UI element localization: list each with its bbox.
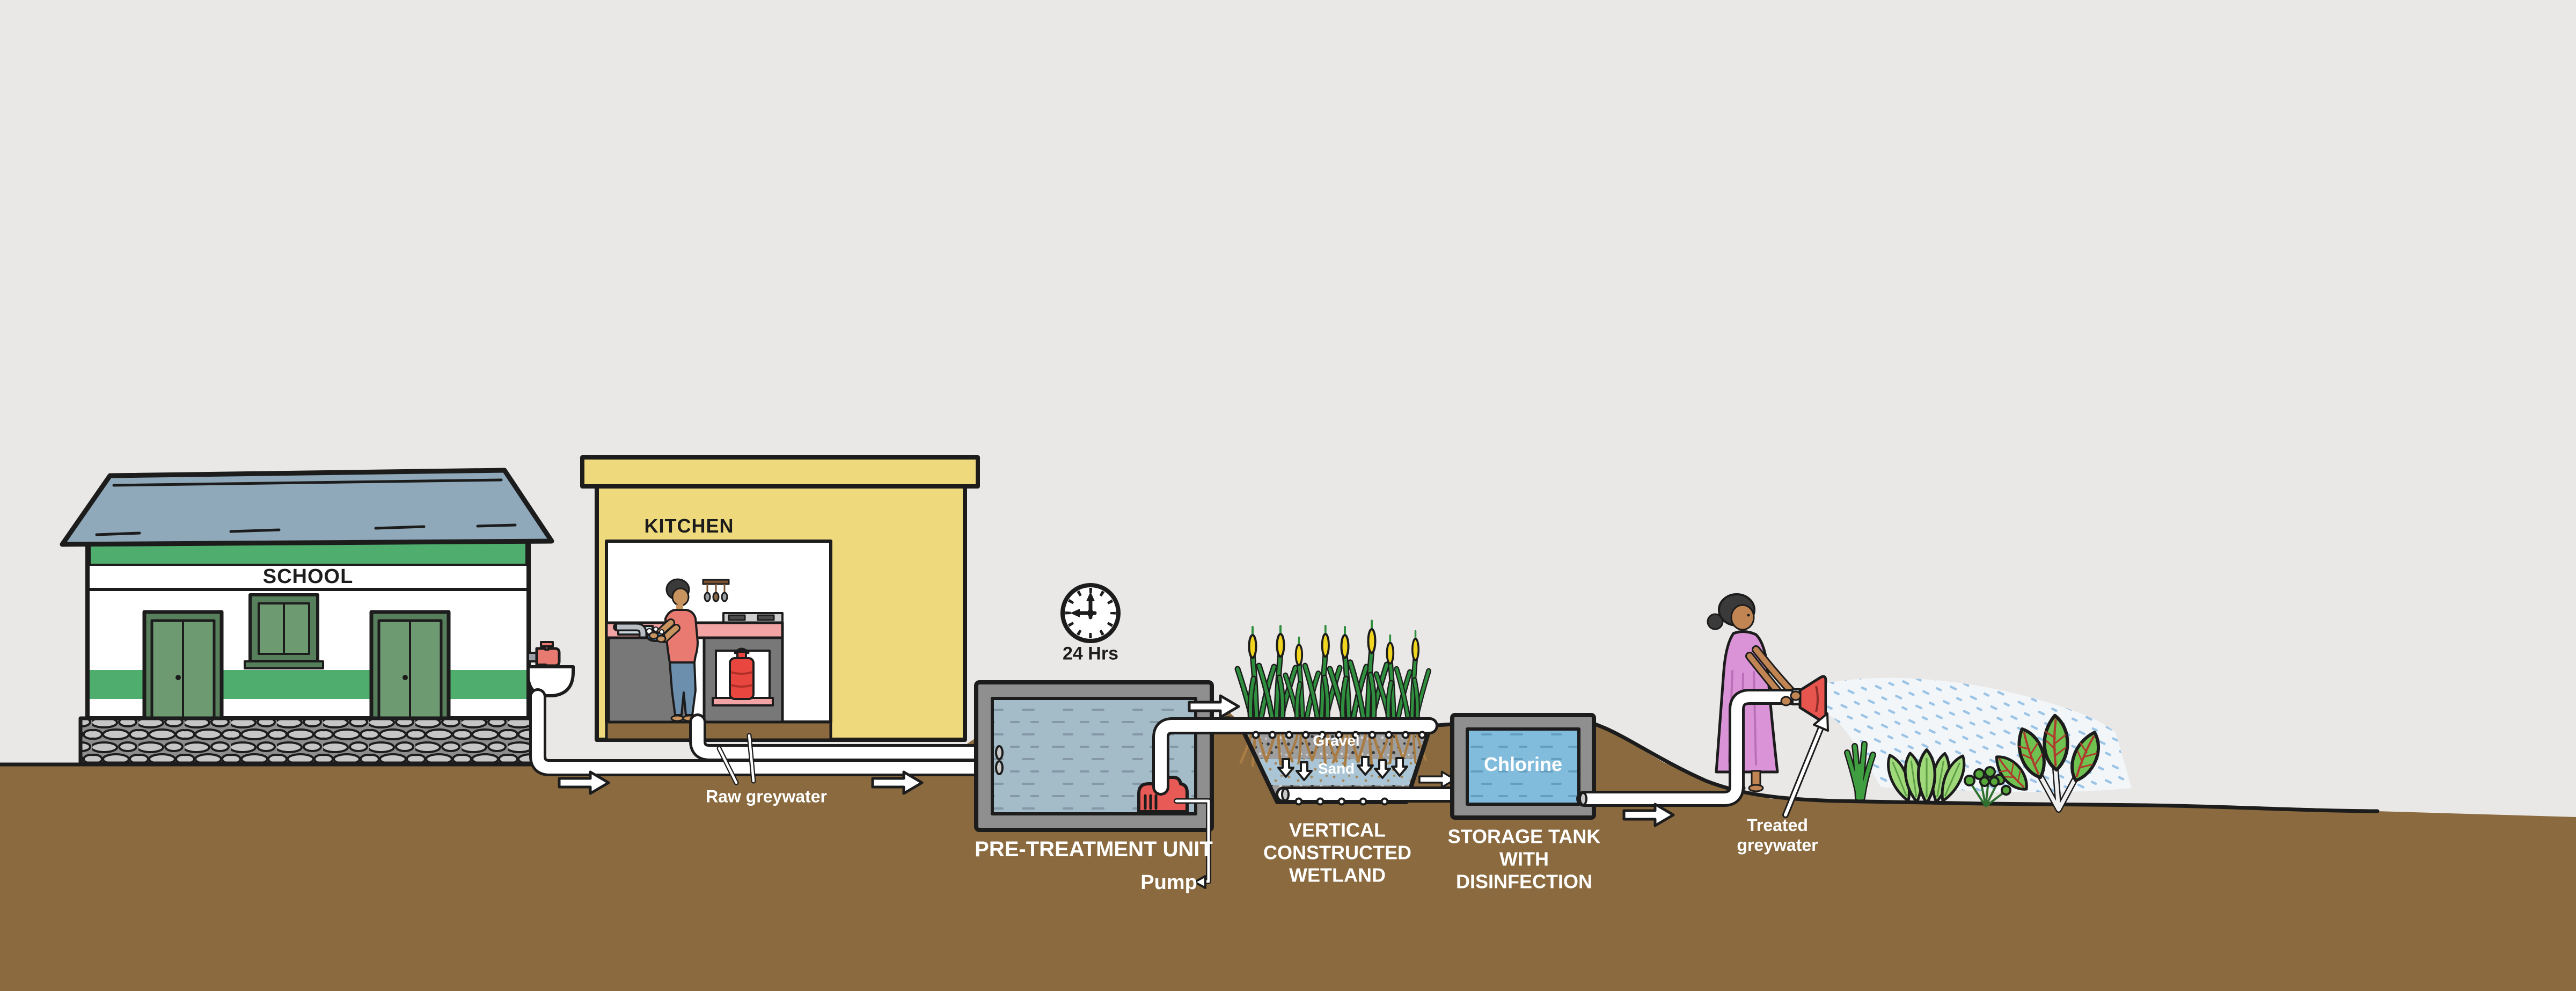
clock-icon [1063,585,1118,641]
pretreatment-label: PRE-TREATMENT UNIT [975,837,1213,862]
raw-greywater-label: Raw greywater [706,786,827,806]
kitchen-interior [606,541,831,740]
kitchen-label: KITCHEN [645,515,734,537]
hand [1791,691,1801,700]
diagram-canvas: SCHOOL KITCHEN 24 Hrs Raw greywater PRE-… [0,0,2576,991]
school-door-right [371,612,449,718]
crop-lettuce [1883,750,1970,804]
treated-greywater-label: Treated greywater [1721,815,1834,855]
school-roof [62,470,552,544]
pretreatment-tank [976,682,1212,830]
utensil-rack-icon [703,580,729,601]
chlorine-label: Chlorine [1484,753,1562,776]
duration-label: 24 Hrs [1063,643,1118,664]
gravel-label: Gravel [1313,732,1359,749]
sand-label: Sand [1318,760,1355,777]
school-label: SCHOOL [263,565,354,588]
school-window [245,595,323,668]
kitchen-roof [582,457,978,486]
storage-tank-label: STORAGE TANK WITH DISINFECTION [1433,825,1615,892]
hand [1781,697,1791,705]
school-foundation [80,718,534,763]
school-building [62,470,573,763]
pump-label: Pump [1140,871,1197,894]
wetland-label: VERTICAL CONSTRUCTED WETLAND [1249,819,1426,886]
kitchen-building [582,457,978,740]
school-door-left [144,612,222,718]
